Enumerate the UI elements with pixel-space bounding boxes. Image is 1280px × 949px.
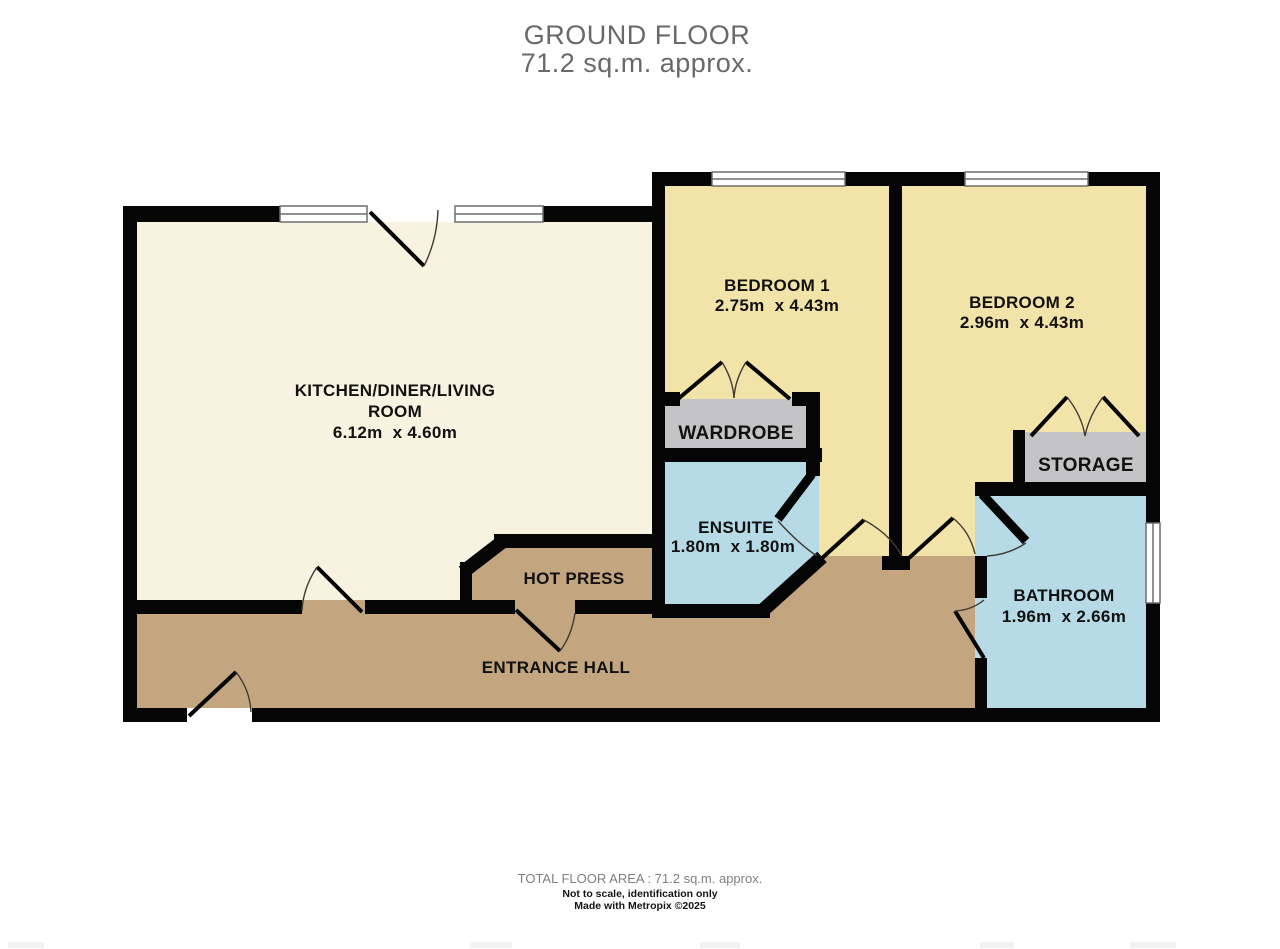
wall-ensuite-bottom [652, 604, 770, 618]
wall-left-outer [123, 206, 137, 722]
kitchen-dims: 6.12m x 4.60m [333, 423, 457, 442]
floor-area-subtitle: 71.2 sq.m. approx. [521, 48, 754, 78]
wall-bedroom1-bedroom2-divider [889, 186, 902, 560]
wall-storage-left [1013, 430, 1025, 496]
floorplan-canvas: GROUND FLOOR 71.2 sq.m. approx. [0, 0, 1280, 949]
kitchen-label-line1: KITCHEN/DINER/LIVING [295, 381, 496, 400]
window-bedroom2 [965, 172, 1088, 186]
doorway-hotpress [515, 600, 575, 614]
footer: TOTAL FLOOR AREA : 71.2 sq.m. approx. No… [518, 871, 763, 912]
hotpress-label: HOT PRESS [524, 569, 625, 588]
wall-right-outer [1146, 172, 1160, 722]
wall-bottom-outer [123, 708, 1160, 722]
kitchen-label-line2: ROOM [368, 402, 422, 421]
wall-hotpress-top [494, 534, 658, 548]
bedroom2-label: BEDROOM 2 [969, 293, 1075, 312]
credit-text: Made with Metropix ©2025 [574, 900, 706, 912]
wall-living-hall [137, 600, 462, 614]
wardrobe-label: WARDROBE [678, 423, 793, 444]
bedroom1-label: BEDROOM 1 [724, 276, 830, 295]
ensuite-label: ENSUITE [698, 518, 774, 537]
bedroom2-dims: 2.96m x 4.43m [960, 313, 1084, 332]
ensuite-dims: 1.80m x 1.80m [671, 537, 795, 556]
bathroom-dims: 1.96m x 2.66m [1002, 607, 1126, 626]
window-living-left [280, 206, 367, 222]
wall-wardrobe-bottom [652, 448, 822, 462]
bedroom1-dims: 2.75m x 4.43m [715, 296, 839, 315]
wall-bathroom-left-stub1 [975, 556, 987, 598]
bottom-artifact-strip [8, 942, 1176, 948]
wall-wardrobe-hinge-left [652, 392, 680, 406]
wall-bathroom-top [975, 482, 1148, 496]
floor-title: GROUND FLOOR [524, 20, 751, 50]
window-bathroom [1146, 523, 1160, 603]
disclaimer-text: Not to scale, identification only [562, 888, 717, 900]
wall-bathroom-left-stub2 [975, 658, 987, 710]
wall-divider-stub [882, 556, 910, 570]
bathroom-label: BATHROOM [1013, 586, 1114, 605]
entrance-hall-label: ENTRANCE HALL [482, 658, 630, 677]
window-living-right [455, 206, 543, 222]
window-bedroom1 [712, 172, 845, 186]
floorplan-page: GROUND FLOOR 71.2 sq.m. approx. [0, 0, 1280, 949]
wall-wardrobe-hinge-right [792, 392, 820, 406]
room-fills [130, 178, 1152, 714]
storage-label: STORAGE [1038, 455, 1134, 476]
total-floor-area-text: TOTAL FLOOR AREA : 71.2 sq.m. approx. [518, 871, 763, 886]
